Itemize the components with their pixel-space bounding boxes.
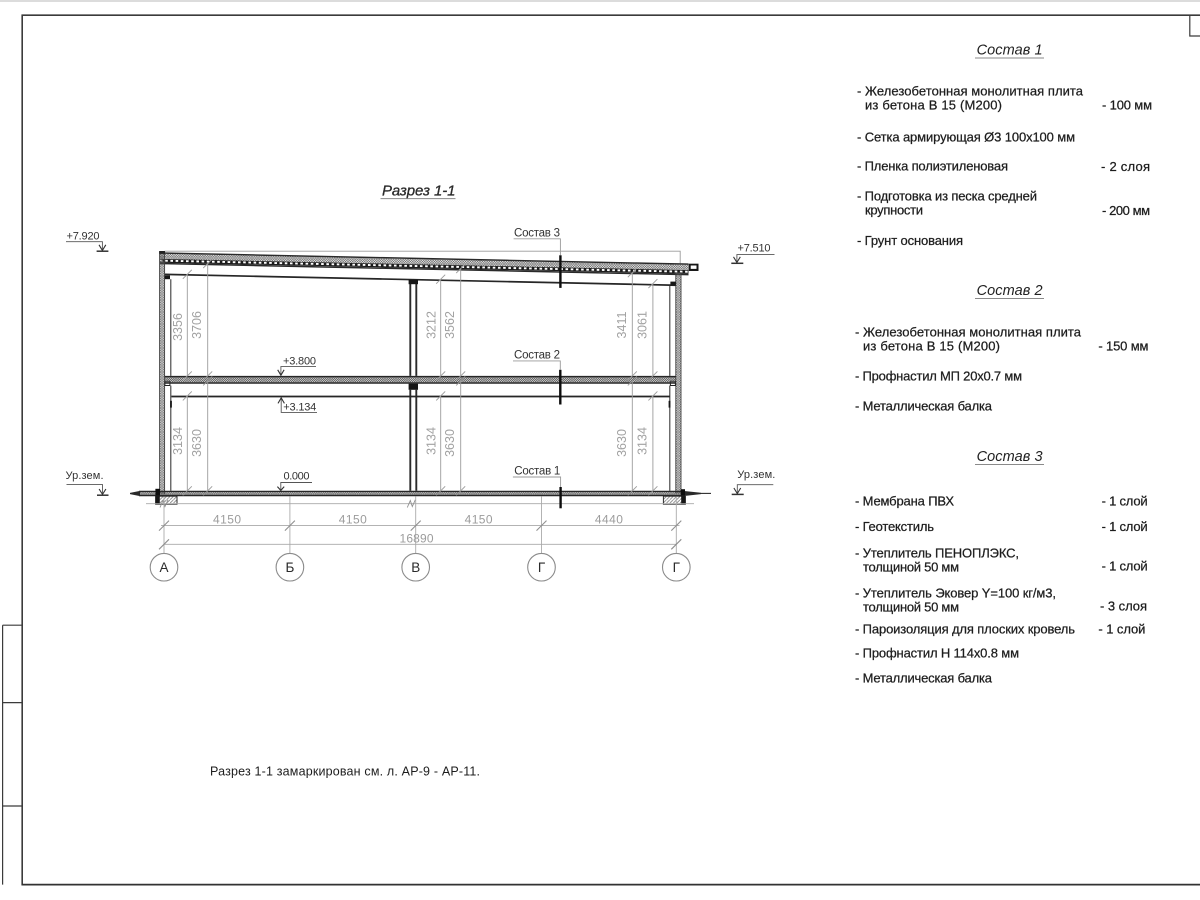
svg-text:- 1 слой: - 1 слой <box>1102 494 1148 509</box>
svg-text:Состав 3: Состав 3 <box>514 227 560 239</box>
svg-text:+7.510: +7.510 <box>738 242 771 254</box>
svg-text:3356: 3356 <box>171 313 185 341</box>
svg-text:из бетона В 15 (М200): из бетона В 15 (М200) <box>863 339 1000 354</box>
svg-text:- 150 мм: - 150 мм <box>1098 339 1148 354</box>
svg-text:- 100 мм: - 100 мм <box>1102 98 1152 113</box>
svg-text:- Металлическая балка: - Металлическая балка <box>855 399 993 414</box>
svg-text:3212: 3212 <box>424 311 438 339</box>
svg-text:А: А <box>159 560 168 575</box>
svg-text:- 3 слоя: - 3 слоя <box>1100 599 1147 614</box>
svg-text:+3.800: +3.800 <box>283 356 316 368</box>
svg-text:Состав 3: Состав 3 <box>977 449 1043 465</box>
svg-text:Состав 1: Состав 1 <box>514 466 560 478</box>
svg-text:Разрез 1-1 замаркирован см. л.: Разрез 1-1 замаркирован см. л. АР-9 - АР… <box>210 765 480 779</box>
svg-text:- 1 слой: - 1 слой <box>1098 622 1145 637</box>
svg-text:3630: 3630 <box>190 429 204 457</box>
svg-text:- Профнастил МП 20x0.7 мм: - Профнастил МП 20x0.7 мм <box>855 369 1022 384</box>
svg-text:- Пароизоляция для плоских кро: - Пароизоляция для плоских кровель <box>855 622 1075 637</box>
svg-text:- Железобетонная монолитная п: - Железобетонная монолитная плита <box>855 325 1082 340</box>
svg-text:3630: 3630 <box>615 429 629 457</box>
svg-text:- Металлическая балка: - Металлическая балка <box>855 671 993 686</box>
svg-text:4150: 4150 <box>339 512 367 526</box>
svg-text:3562: 3562 <box>443 311 457 339</box>
svg-text:Г: Г <box>673 560 681 575</box>
svg-text:Г: Г <box>538 560 546 575</box>
svg-text:+7.920: +7.920 <box>67 230 100 242</box>
svg-text:3706: 3706 <box>190 311 204 339</box>
svg-text:- Утеплитель ПЕНОПЛЭКС,: - Утеплитель ПЕНОПЛЭКС, <box>855 546 1019 561</box>
svg-text:- 200 мм: - 200 мм <box>1102 203 1150 218</box>
svg-text:16890: 16890 <box>400 531 434 545</box>
svg-text:0.000: 0.000 <box>284 470 310 482</box>
svg-text:3061: 3061 <box>635 311 649 339</box>
svg-text:- Профнастил Н 114x0.8 мм: - Профнастил Н 114x0.8 мм <box>855 646 1019 661</box>
svg-text:4440: 4440 <box>595 512 623 526</box>
svg-text:Ур.зем.: Ур.зем. <box>66 470 104 482</box>
svg-text:В: В <box>411 560 420 575</box>
svg-text:3134: 3134 <box>635 427 649 455</box>
svg-text:Состав 2: Состав 2 <box>514 350 560 362</box>
svg-text:- 1 слой: - 1 слой <box>1102 559 1148 574</box>
svg-text:3134: 3134 <box>171 427 185 455</box>
svg-text:- Грунт основания: - Грунт основания <box>857 233 963 248</box>
svg-text:3134: 3134 <box>424 427 438 455</box>
svg-text:Ур.зем.: Ур.зем. <box>737 469 775 481</box>
svg-text:толщиной 50 мм: толщиной 50 мм <box>863 600 959 615</box>
svg-text:- Железобетонная монолитная п: - Железобетонная монолитная плита <box>857 84 1084 99</box>
svg-text:крупности: крупности <box>865 203 923 218</box>
svg-text:- Геотекстиль: - Геотекстиль <box>855 519 934 534</box>
svg-text:Б: Б <box>285 560 294 575</box>
svg-text:из бетона В 15 (М200): из бетона В 15 (М200) <box>865 98 1002 113</box>
svg-text:- Мембрана ПВХ: - Мембрана ПВХ <box>855 494 954 509</box>
svg-text:Состав 1: Состав 1 <box>977 43 1043 59</box>
svg-text:Разрез 1-1: Разрез 1-1 <box>382 183 456 200</box>
svg-text:- 1 слой: - 1 слой <box>1102 519 1148 534</box>
svg-text:Состав 2: Состав 2 <box>977 283 1043 299</box>
svg-text:4150: 4150 <box>465 512 493 526</box>
svg-text:- Утеплитель Эковер Y=100 кг/м: - Утеплитель Эковер Y=100 кг/м3, <box>855 586 1056 601</box>
svg-text:3411: 3411 <box>615 312 629 339</box>
svg-text:толщиной 50 мм: толщиной 50 мм <box>863 560 959 575</box>
svg-text:4150: 4150 <box>213 512 241 526</box>
svg-text:- 2 слоя: - 2 слоя <box>1101 159 1150 174</box>
svg-text:- Подготовка из песка средней: - Подготовка из песка средней <box>857 189 1037 204</box>
svg-text:- Пленка полиэтиленовая: - Пленка полиэтиленовая <box>857 159 1008 174</box>
svg-text:- Сетка армирующая Ø3 100x100: - Сетка армирующая Ø3 100x100 мм <box>857 130 1075 145</box>
svg-text:+3.134: +3.134 <box>283 401 316 413</box>
svg-text:3630: 3630 <box>443 429 457 457</box>
